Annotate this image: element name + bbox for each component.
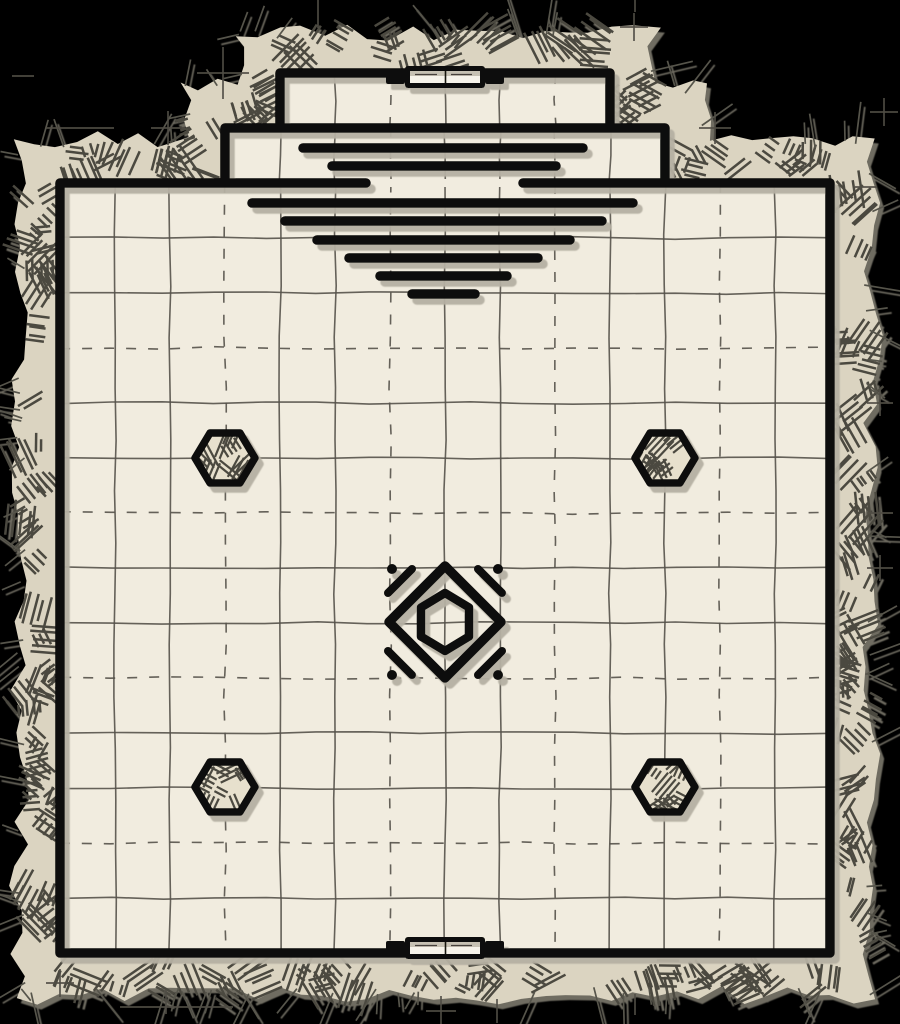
rock-whisker <box>804 122 805 143</box>
rock-whisker <box>185 60 190 87</box>
door-stub <box>386 70 405 84</box>
rock-whisker <box>1 152 19 155</box>
ornament-corner-dot <box>493 564 503 574</box>
grid-line <box>391 127 392 183</box>
ornament-corner-dot <box>387 564 397 574</box>
rock-whisker <box>41 120 49 147</box>
rock-whisker <box>182 992 194 1019</box>
rock-stroke <box>22 706 23 717</box>
rock-whisker <box>224 74 242 78</box>
rock-whisker <box>508 9 519 38</box>
rock-stroke <box>5 504 8 535</box>
rock-whisker <box>865 663 889 674</box>
rock-stroke <box>869 949 886 958</box>
pillar <box>634 431 695 483</box>
pillar <box>635 761 695 815</box>
rock-stroke <box>26 700 28 716</box>
rock-whisker <box>866 674 892 686</box>
rock-stroke <box>832 363 857 365</box>
rock-stroke <box>26 790 38 791</box>
rock-stroke <box>25 783 36 784</box>
grid-line <box>554 129 555 183</box>
rock-whisker <box>154 114 171 144</box>
rock-whisker <box>667 61 674 86</box>
rock-whisker <box>240 12 247 32</box>
rock-whisker <box>865 536 900 537</box>
rock-whisker <box>377 994 378 1014</box>
rock-stroke <box>375 18 389 27</box>
rock-whisker <box>54 119 64 147</box>
dungeon-map-canvas <box>0 0 900 1024</box>
pillar <box>194 760 255 814</box>
rock-whisker <box>2 582 21 590</box>
rock-whisker <box>867 885 883 886</box>
door-stub <box>386 941 405 955</box>
rock-stroke <box>870 693 882 700</box>
door-stub <box>485 70 504 84</box>
rock-whisker <box>319 993 333 1024</box>
rock-whisker <box>277 989 297 1014</box>
rock-whisker <box>172 993 176 1012</box>
rock-whisker <box>233 994 249 1024</box>
ornament-corner-dot <box>493 670 503 680</box>
rock-stroke <box>835 355 859 357</box>
ornament-corner-dot <box>387 670 397 680</box>
rock-whisker <box>651 61 693 71</box>
rock-stroke <box>23 796 37 797</box>
pillar <box>195 430 256 487</box>
rock-stroke <box>27 261 28 282</box>
door-stub <box>485 941 504 955</box>
dungeon-map <box>0 0 900 1024</box>
rock-whisker <box>217 34 239 39</box>
rock-whisker <box>2 825 18 831</box>
rock-whisker <box>872 726 900 742</box>
rock-stroke <box>3 696 17 714</box>
rock-stroke <box>466 976 468 987</box>
rock-whisker <box>549 18 552 31</box>
rock-stroke <box>23 809 40 810</box>
rock-whisker <box>506 0 519 35</box>
rock-whisker <box>171 127 172 141</box>
rock-whisker <box>255 6 264 32</box>
rock-stroke <box>18 705 19 716</box>
rock-stroke <box>586 13 613 32</box>
rock-whisker <box>623 993 624 1024</box>
rock-whisker <box>870 974 900 995</box>
rock-stroke <box>20 802 40 804</box>
rock-whisker <box>398 993 399 1007</box>
rock-whisker <box>870 640 900 655</box>
